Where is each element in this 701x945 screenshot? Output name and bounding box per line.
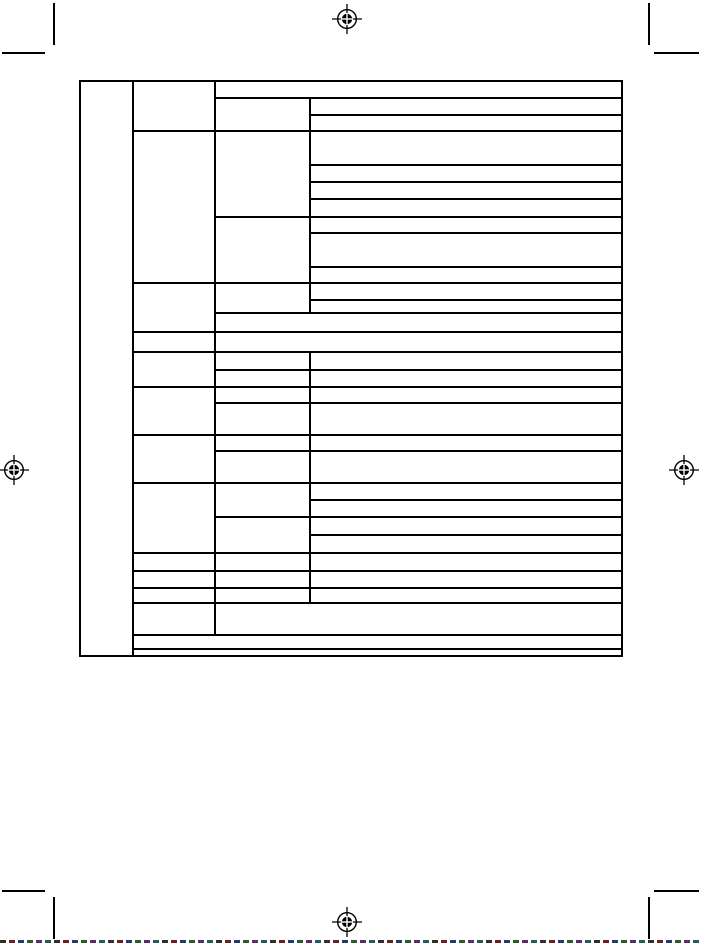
table-grid-hline [132, 648, 623, 650]
table-grid-hline [214, 312, 623, 314]
table-grid-vline [214, 80, 216, 636]
crop-mark-bottom-left-h [2, 890, 45, 892]
crop-mark-top-left-v [53, 3, 55, 45]
tear-line [0, 940, 701, 943]
registration-mark-icon [669, 455, 699, 485]
crop-mark-top-left-h [2, 52, 45, 54]
table-grid-hline [309, 534, 623, 536]
table-grid-hline [309, 114, 623, 116]
table-grid-hline [132, 282, 623, 284]
crop-mark-top-right-v [648, 3, 650, 45]
registration-mark-icon [0, 455, 29, 485]
table-grid-hline [214, 402, 623, 404]
table-grid-hline [309, 181, 623, 183]
table-grid-hline [214, 216, 623, 218]
table-grid-vline [621, 80, 623, 657]
table-grid-hline [132, 351, 623, 353]
registration-mark-icon [332, 4, 362, 34]
table-grid-hline [132, 570, 623, 572]
page [0, 0, 701, 945]
table-grid-hline [132, 386, 623, 388]
table-grid-hline [132, 331, 623, 333]
table-grid-hline [309, 232, 623, 234]
table-grid-vline [132, 80, 134, 657]
table-grid-hline [132, 130, 623, 132]
table-grid-hline [214, 450, 623, 452]
table-grid-hline [132, 634, 623, 636]
table-grid-hline [214, 369, 623, 371]
crop-mark-bottom-right-v [648, 897, 650, 939]
table-grid-hline [309, 499, 623, 501]
table-grid-hline [132, 587, 623, 589]
table-grid-hline [214, 97, 623, 99]
table-grid-hline [132, 602, 623, 604]
table-grid-hline [132, 434, 623, 436]
table-grid-vline [309, 351, 311, 604]
table-grid-hline [214, 516, 623, 518]
table-grid-hline [79, 80, 623, 82]
crop-mark-bottom-right-h [654, 890, 699, 892]
table-grid-hline [309, 164, 623, 166]
table-grid-hline [309, 198, 623, 200]
crop-mark-top-right-h [654, 52, 699, 54]
table-grid-hline [309, 266, 623, 268]
table-grid-vline [79, 80, 81, 657]
table-grid-hline [309, 299, 623, 301]
table-grid-hline [132, 552, 623, 554]
table-grid-hline [132, 482, 623, 484]
table-grid-vline [309, 97, 311, 314]
table-grid-hline [79, 655, 623, 657]
registration-mark-icon [332, 907, 362, 937]
crop-mark-bottom-left-v [53, 897, 55, 939]
